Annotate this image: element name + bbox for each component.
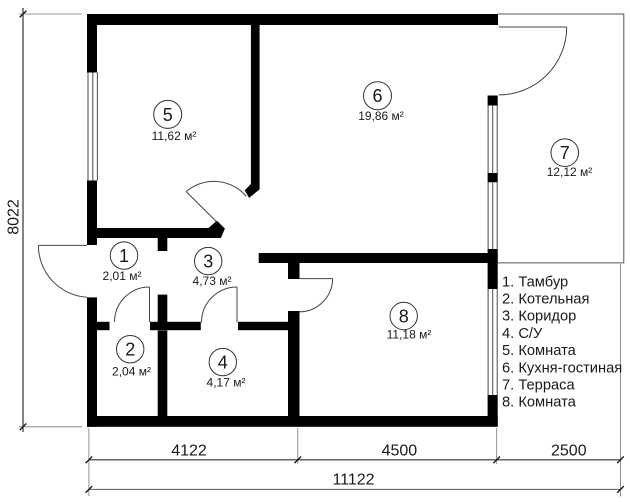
svg-text:7: 7: [560, 143, 570, 163]
svg-text:8022: 8022: [6, 199, 23, 235]
svg-text:4,73 м²: 4,73 м²: [193, 274, 232, 288]
svg-text:2. Котельная: 2. Котельная: [502, 292, 589, 308]
svg-text:11,62 м²: 11,62 м²: [152, 129, 197, 143]
svg-text:6. Кухня-гостиная: 6. Кухня-гостиная: [502, 360, 622, 376]
svg-text:8: 8: [399, 307, 409, 327]
svg-text:19,86 м²: 19,86 м²: [358, 109, 404, 123]
svg-text:6: 6: [372, 86, 382, 106]
svg-text:4122: 4122: [171, 443, 207, 460]
svg-text:12,12 м²: 12,12 м²: [547, 165, 593, 179]
svg-text:11122: 11122: [332, 471, 374, 488]
svg-text:5. Комната: 5. Комната: [502, 343, 577, 359]
svg-text:3. Коридор: 3. Коридор: [502, 309, 576, 325]
svg-text:2: 2: [125, 340, 135, 360]
svg-text:2,01 м²: 2,01 м²: [103, 269, 142, 283]
svg-text:5: 5: [163, 105, 173, 125]
svg-text:1. Тамбур: 1. Тамбур: [502, 274, 568, 290]
svg-text:8. Комната: 8. Комната: [502, 395, 577, 411]
svg-text:1: 1: [119, 246, 129, 266]
svg-text:2500: 2500: [551, 442, 587, 459]
svg-text:2,04 м²: 2,04 м²: [112, 365, 151, 379]
svg-text:4. С/У: 4. С/У: [502, 326, 543, 342]
svg-text:11,18 м²: 11,18 м²: [387, 328, 432, 342]
svg-text:3: 3: [203, 252, 213, 272]
svg-text:4: 4: [218, 353, 228, 373]
svg-text:4500: 4500: [382, 443, 418, 460]
svg-text:4,17 м²: 4,17 м²: [207, 376, 246, 390]
svg-text:7. Терраса: 7. Терраса: [502, 378, 575, 394]
